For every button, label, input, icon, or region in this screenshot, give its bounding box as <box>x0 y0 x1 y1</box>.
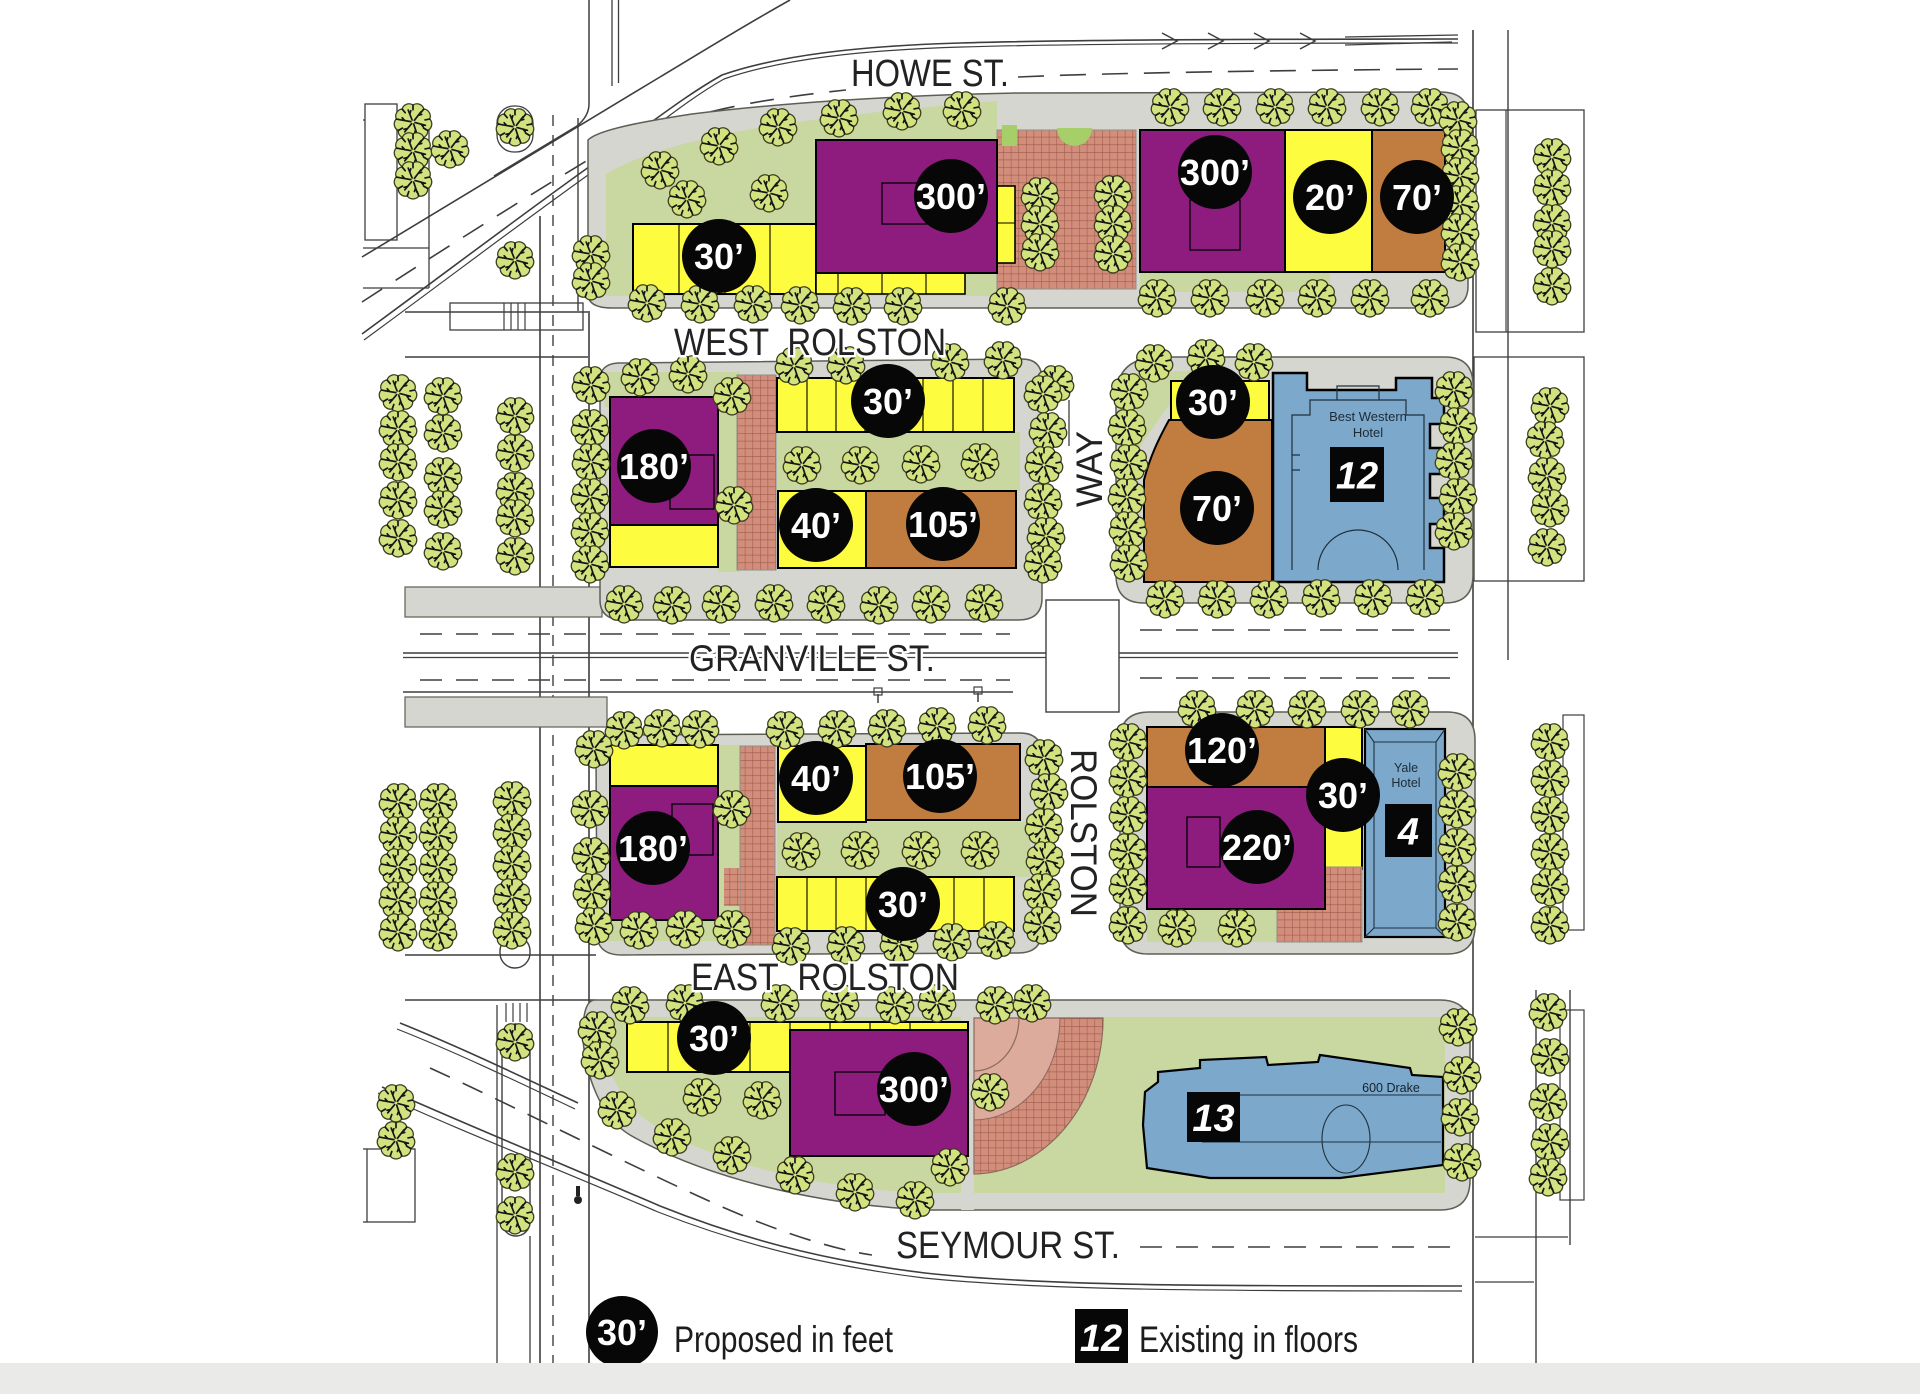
svg-text:220’: 220’ <box>1222 827 1292 868</box>
svg-text:12: 12 <box>1080 1318 1122 1360</box>
svg-text:40’: 40’ <box>791 505 841 546</box>
svg-text:30’: 30’ <box>1318 775 1368 816</box>
svg-text:40’: 40’ <box>791 758 841 799</box>
svg-text:Hotel: Hotel <box>1391 776 1420 790</box>
svg-text:30’: 30’ <box>878 884 928 925</box>
svg-text:180’: 180’ <box>618 828 688 869</box>
svg-text:30’: 30’ <box>689 1018 739 1059</box>
svg-text:4: 4 <box>1397 812 1419 854</box>
svg-text:Best Western: Best Western <box>1329 409 1407 424</box>
svg-text:30’: 30’ <box>597 1312 647 1353</box>
svg-text:105’: 105’ <box>908 504 978 545</box>
svg-text:WEST ROLSTON: WEST ROLSTON <box>674 322 946 364</box>
svg-text:Yale: Yale <box>1394 761 1418 775</box>
svg-text:300’: 300’ <box>1180 152 1250 193</box>
svg-text:ROLSTON: ROLSTON <box>1063 749 1104 917</box>
svg-text:120’: 120’ <box>1187 730 1257 771</box>
svg-text:70’: 70’ <box>1392 177 1442 218</box>
svg-text:30’: 30’ <box>694 236 744 277</box>
svg-text:180’: 180’ <box>619 446 689 487</box>
svg-text:70’: 70’ <box>1192 488 1242 529</box>
svg-text:105’: 105’ <box>905 756 975 797</box>
svg-text:30’: 30’ <box>863 381 913 422</box>
svg-text:12: 12 <box>1336 456 1378 498</box>
svg-text:600 Drake: 600 Drake <box>1362 1081 1420 1095</box>
svg-text:300’: 300’ <box>916 176 986 217</box>
svg-text:HOWE ST.: HOWE ST. <box>851 53 1009 95</box>
svg-text:13: 13 <box>1192 1098 1234 1140</box>
svg-text:GRANVILLE ST.: GRANVILLE ST. <box>689 638 935 679</box>
svg-text:30’: 30’ <box>1188 382 1238 423</box>
svg-text:SEYMOUR ST.: SEYMOUR ST. <box>896 1225 1120 1267</box>
svg-text:300’: 300’ <box>879 1069 949 1110</box>
svg-text:WAY: WAY <box>1069 431 1110 507</box>
svg-text:Existing in floors: Existing in floors <box>1139 1319 1358 1360</box>
svg-text:20’: 20’ <box>1305 177 1355 218</box>
svg-text:EAST ROLSTON: EAST ROLSTON <box>691 957 959 999</box>
svg-text:Hotel: Hotel <box>1353 425 1383 440</box>
svg-text:Proposed in feet: Proposed in feet <box>674 1319 894 1360</box>
